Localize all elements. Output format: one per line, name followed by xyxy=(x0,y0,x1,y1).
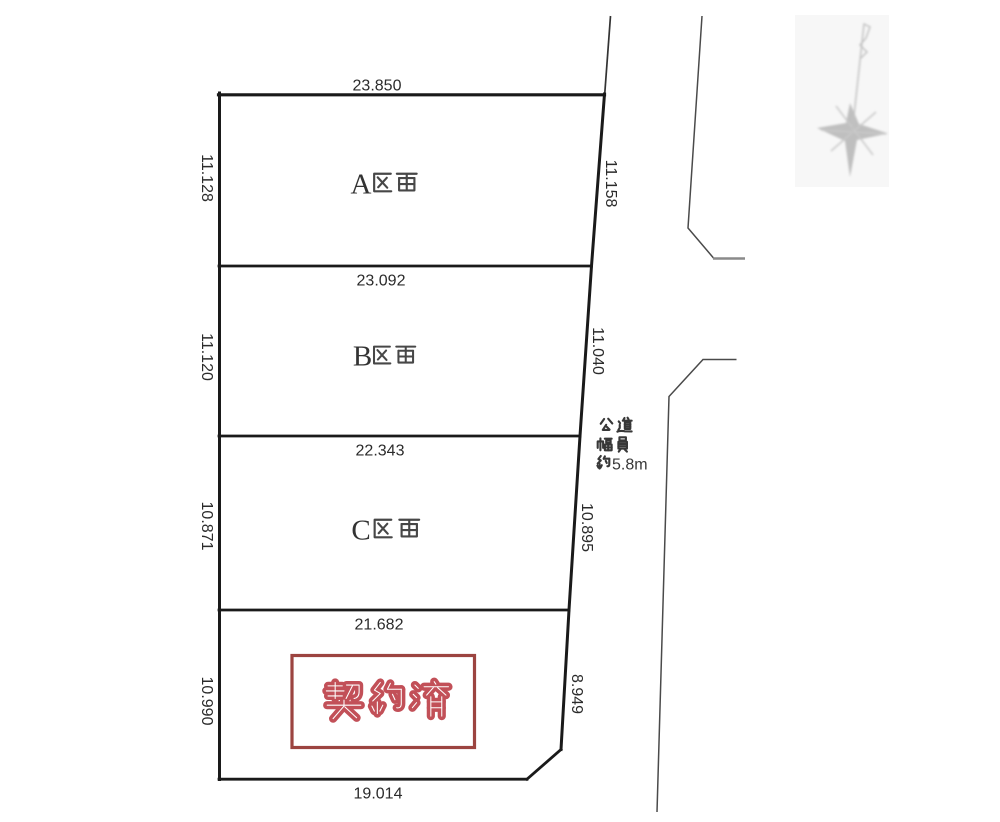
svg-text:11.040: 11.040 xyxy=(589,327,606,375)
svg-text:11.120: 11.120 xyxy=(198,333,215,381)
svg-text:23.850: 23.850 xyxy=(353,78,402,95)
svg-text:21.682: 21.682 xyxy=(355,617,404,634)
svg-text:11.158: 11.158 xyxy=(602,160,619,208)
svg-text:10.895: 10.895 xyxy=(578,503,595,552)
svg-text:8.949: 8.949 xyxy=(568,674,585,714)
svg-text:19.014: 19.014 xyxy=(354,786,403,803)
svg-text:10.871: 10.871 xyxy=(198,502,215,551)
svg-text:B: B xyxy=(353,341,372,373)
svg-text:22.343: 22.343 xyxy=(356,443,405,460)
svg-text:11.128: 11.128 xyxy=(198,154,215,202)
svg-text:10.990: 10.990 xyxy=(198,677,215,726)
svg-text:A: A xyxy=(351,169,372,201)
svg-text:23.092: 23.092 xyxy=(357,273,406,290)
svg-text:5.8m: 5.8m xyxy=(612,457,648,474)
svg-text:C: C xyxy=(351,515,370,547)
